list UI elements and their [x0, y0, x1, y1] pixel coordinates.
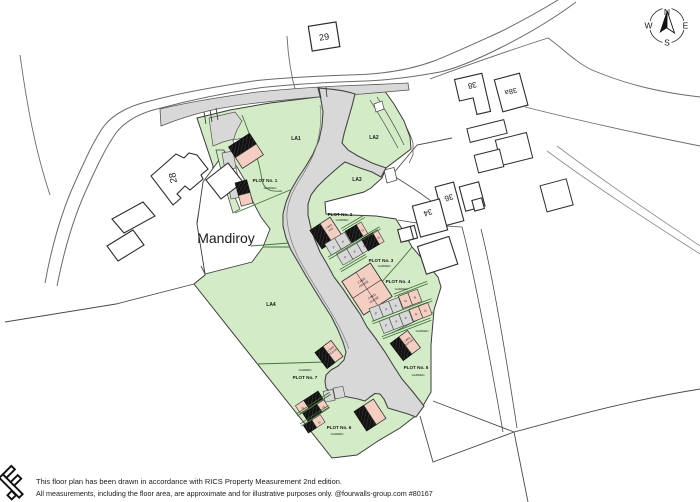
svg-text:S: S [664, 38, 670, 48]
svg-text:GARDEN: GARDEN [412, 373, 425, 377]
svg-text:E: E [683, 21, 689, 31]
svg-text:LA3: LA3 [352, 177, 362, 183]
svg-text:PLOT No. 4: PLOT No. 4 [386, 279, 411, 284]
svg-text:LA1: LA1 [291, 136, 301, 142]
svg-text:GARDEN: GARDEN [378, 264, 391, 268]
svg-text:GARDEN: GARDEN [416, 329, 429, 333]
svg-text:W: W [644, 21, 652, 31]
svg-text:GARDEN: GARDEN [331, 432, 344, 436]
svg-text:GARDEN: GARDEN [299, 368, 312, 372]
svg-text:29: 29 [318, 31, 329, 42]
svg-text:GARDEN: GARDEN [395, 287, 408, 291]
svg-text:LA2: LA2 [369, 135, 379, 141]
svg-text:All measurements, including th: All measurements, including the floor ar… [36, 489, 433, 498]
svg-text:This floor plan has been drawn: This floor plan has been drawn in accord… [36, 477, 342, 486]
svg-text:GARDEN: GARDEN [336, 218, 349, 222]
svg-text:PLOT No. 3: PLOT No. 3 [369, 258, 394, 263]
svg-text:PLOT No. 6: PLOT No. 6 [327, 425, 352, 430]
svg-text:28: 28 [167, 172, 180, 184]
svg-text:PLOT No. 1: PLOT No. 1 [253, 178, 278, 183]
svg-text:PLOT No. 2: PLOT No. 2 [328, 212, 353, 217]
svg-text:GARDEN: GARDEN [264, 186, 277, 190]
svg-text:PLOT No. 5: PLOT No. 5 [404, 365, 429, 370]
svg-text:PLOT No. 7: PLOT No. 7 [293, 375, 318, 380]
svg-text:Mandiroy: Mandiroy [197, 230, 255, 246]
svg-text:LA4: LA4 [266, 302, 276, 308]
